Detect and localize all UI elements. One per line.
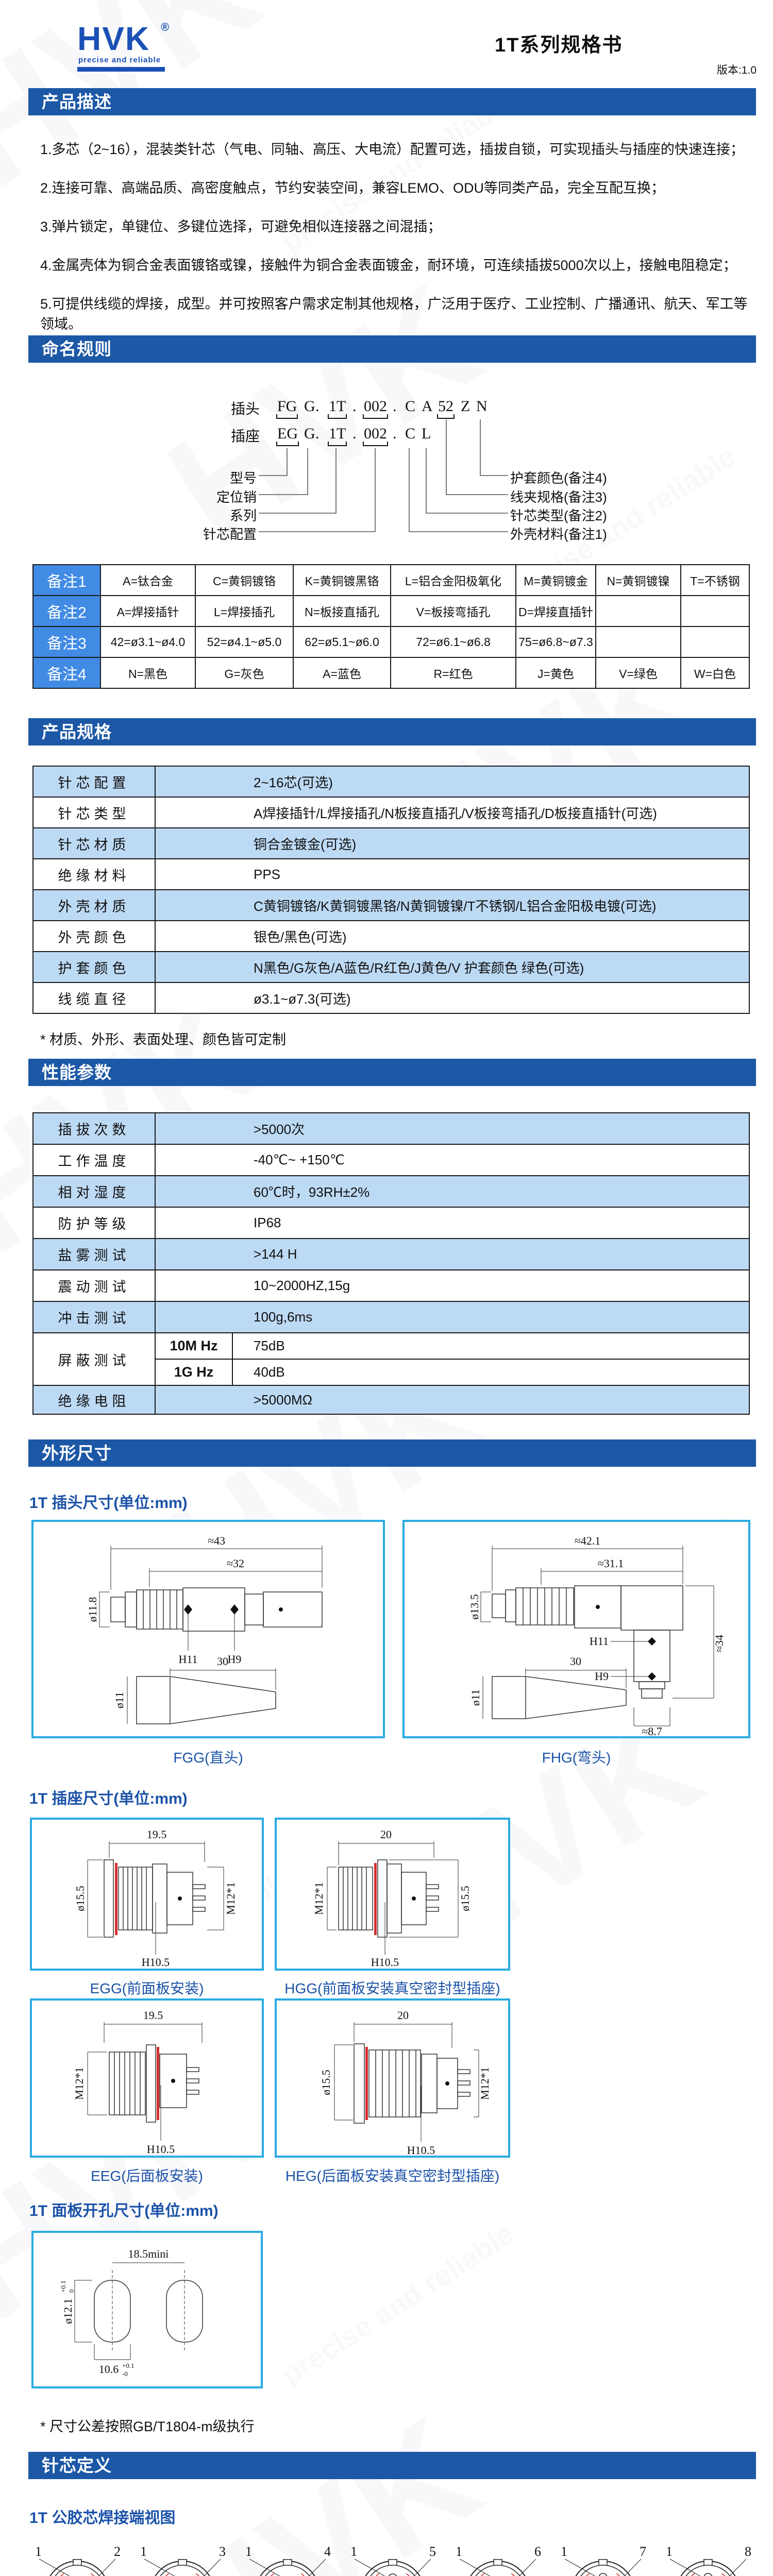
version-label: 版本:1.0: [680, 62, 757, 77]
drawing-box-fgg: ≈43 ≈32 ø11.8 H11 H9 30 ø11: [31, 1520, 385, 1738]
spec-row-label: 针芯材质: [33, 828, 155, 859]
performance-table: 插拔次数>5000次工作温度-40℃~ +150℃相对湿度60℃时，93RH±2…: [32, 1112, 750, 1415]
notes-cell: [681, 596, 749, 626]
pin-view-diagram: 13: [130, 2543, 235, 2576]
egg-drawing: 19.5 ø15.5 M12*1 H10.5: [32, 1820, 262, 1969]
naming-code-token: FG: [277, 398, 297, 415]
dim-eeg-thread: M12*1: [73, 2067, 86, 2100]
pin-view-item: 15公针芯焊接端焊接排序图: [340, 2543, 445, 2576]
section-bar-dimensions: 外形尺寸: [28, 1439, 756, 1467]
perf-row-value: 60℃时，93RH±2%: [155, 1176, 749, 1207]
logo: HVK: [77, 20, 150, 58]
perf-row-value: >144 H: [155, 1239, 749, 1270]
dim-hgg-dia: ø15.5: [459, 1886, 472, 1911]
notes-cell: N=黑色: [100, 657, 195, 688]
naming-code-token: G: [304, 425, 315, 443]
notes-row-label: 备注2: [33, 596, 100, 626]
perf-row-label: 工作温度: [33, 1144, 155, 1176]
drawing-box-fhg: ≈42.1 ≈31.1 ø13.5 ≈34 H11 H9 30 ø11 ≈8.7: [402, 1520, 750, 1738]
naming-code-token: C: [405, 425, 415, 443]
notes-row-label: 备注3: [33, 626, 100, 657]
caption-fhg: FHG(弯头): [402, 1747, 750, 1767]
pin-count-label-right: 6: [534, 2544, 541, 2559]
notes-cell: N=板接直插孔: [293, 596, 391, 626]
notes-cell: R=红色: [391, 657, 516, 688]
notes-cell: A=钛合金: [100, 565, 195, 596]
pin-count-label-left: 1: [140, 2544, 147, 2559]
naming-left-label: 定位销: [175, 487, 257, 506]
eeg-drawing: 19.5 M12*1 H10.5: [32, 2001, 262, 2156]
perf-row-value: 10~2000HZ,15g: [155, 1270, 749, 1301]
notes-cell: [596, 596, 681, 626]
naming-row-label: 插座: [231, 425, 260, 446]
pin-count-label-left: 1: [666, 2544, 673, 2559]
spec-row-label: 外壳颜色: [33, 921, 155, 952]
spec-row-label: 线缆直径: [33, 982, 155, 1013]
dim-panel-width: 10.6: [99, 2363, 119, 2376]
dim-fhg-h11: H11: [590, 1635, 609, 1648]
notes-cell: 62=ø5.1~ø6.0: [293, 626, 391, 657]
pin-view-item: 14公针芯焊接端焊接排序图: [235, 2543, 340, 2576]
drawing-box-panel: 18.5mini ø12.1 +0.1 0 10.6 +0.1 -0: [31, 2231, 263, 2388]
description-list: 1.多芯（2~16），混装类针芯（气电、同轴、高压、大电流）配置可选，插拔自锁，…: [40, 138, 757, 351]
subtitle-socket-dims: 1T 插座尺寸(单位:mm): [29, 1786, 188, 1808]
dim-egg-thread: M12*1: [224, 1882, 237, 1915]
drawing-box-egg: 19.5 ø15.5 M12*1 H10.5: [30, 1818, 264, 1971]
notes-row-label: 备注1: [33, 565, 100, 596]
logo-registered-mark: ®: [161, 21, 169, 34]
notes-cell: V=绿色: [596, 657, 681, 688]
dim-fhg-total: ≈42.1: [575, 1534, 601, 1547]
subtitle-male-pin-views: 1T 公胶芯焊接端视图: [29, 2505, 175, 2528]
naming-code-token: N: [476, 398, 488, 415]
logo-underline: [77, 67, 165, 72]
dim-egg-h: H10.5: [142, 1956, 170, 1969]
performance-table-grid: 插拔次数>5000次工作温度-40℃~ +150℃相对湿度60℃时，93RH±2…: [32, 1112, 750, 1415]
spec-row-value: N黑色/G灰色/A蓝色/R红色/J黄色/V 护套颜色 绿色(可选): [155, 952, 749, 982]
dim-fhg-height: ≈34: [713, 1635, 726, 1652]
perf-shield-freq: 10M Hz: [155, 1333, 232, 1359]
naming-code-token: C: [405, 398, 415, 415]
pin-count-label-right: 3: [219, 2544, 226, 2559]
naming-code-token: G: [304, 398, 315, 415]
dim-fhg-boot-len: 30: [570, 1655, 581, 1668]
caption-heg: HEG(后面板安装真空密封型插座): [275, 2165, 510, 2185]
perf-row-value: 100g,6ms: [155, 1301, 749, 1333]
spec-row-label: 针芯类型: [33, 797, 155, 828]
perf-row-label: 震动测试: [33, 1270, 155, 1301]
naming-code-token: .: [352, 398, 357, 415]
caption-fgg: FGG(直头): [31, 1747, 385, 1767]
naming-left-label: 针芯配置: [175, 524, 257, 543]
pin-view-diagram: 15: [340, 2543, 445, 2576]
pin-view-item: 18公针芯焊接端焊接排序图: [656, 2543, 761, 2576]
spec-row-value: PPS: [155, 859, 749, 890]
section-bar-performance: 性能参数: [28, 1059, 756, 1086]
notes-cell: [596, 626, 681, 657]
notes-cell: V=板接弯插孔: [391, 596, 516, 626]
notes-cell: D=焊接直插针: [516, 596, 596, 626]
notes-cell: C=黄铜镀铬: [195, 565, 293, 596]
dim-panel-w-tol-top: +0.1: [122, 2362, 135, 2369]
notes-table: 备注1A=钛合金C=黄铜镀铬K=黄铜镀黑铬L=铝合金阳极氧化M=黄铜镀金N=黄铜…: [32, 564, 750, 689]
perf-shield-freq: 1G Hz: [155, 1359, 232, 1385]
dim-panel-w-tol-bot: -0: [122, 2370, 128, 2378]
notes-cell: 75=ø6.8~ø7.3: [516, 626, 596, 657]
page-title: 1T系列规格书: [495, 29, 623, 57]
dim-fgg-total: ≈43: [208, 1534, 225, 1547]
perf-row-label: 冲击测试: [33, 1301, 155, 1333]
dim-panel-dia-tol-bot: 0: [68, 2290, 75, 2293]
dim-fgg-h9: H9: [228, 1653, 242, 1666]
notes-cell: G=灰色: [195, 657, 293, 688]
heg-drawing: 20 ø15.5 M12*1 H10.5: [277, 2001, 508, 2156]
naming-right-label: 护套颜色(备注4): [510, 468, 607, 487]
dim-fhg-h9: H9: [595, 1670, 609, 1683]
panel-cutout-drawing: 18.5mini ø12.1 +0.1 0 10.6 +0.1 -0: [33, 2233, 261, 2386]
pin-count-label-left: 1: [350, 2544, 357, 2559]
pin-view-item: 16公针芯焊接端焊接排序图: [445, 2543, 550, 2576]
pin-count-label-right: 7: [640, 2544, 646, 2559]
spec-row-value: 银色/黑色(可选): [155, 921, 749, 952]
hgg-drawing: 20 M12*1 ø15.5 H10.5: [277, 1820, 508, 1969]
naming-left-label: 系列: [175, 505, 257, 524]
dim-heg-len: 20: [397, 2009, 409, 2022]
section-bar-description: 产品描述: [28, 88, 756, 115]
dim-egg-dia: ø15.5: [74, 1886, 87, 1911]
notes-cell: T=不锈钢: [681, 565, 749, 596]
pin-view-diagram: 12: [25, 2543, 130, 2576]
caption-hgg: HGG(前面板安装真空密封型插座): [275, 1977, 510, 1998]
dim-eeg-len: 19.5: [143, 2009, 163, 2022]
notes-cell: A=焊接插针: [100, 596, 195, 626]
section-bar-spec: 产品规格: [28, 718, 756, 745]
dim-heg-h: H10.5: [407, 2144, 435, 2156]
naming-code-token: A: [422, 398, 433, 415]
pin-view-item: 17公针芯焊接端焊接排序图: [550, 2543, 656, 2576]
notes-cell: N=黄铜镀镍: [596, 565, 681, 596]
naming-diagram: 插头FGG.1T.002.CA52ZN插座EGG.1T.002.CL型号定位销系…: [0, 386, 773, 541]
subtitle-panel-cutout: 1T 面板开孔尺寸(单位:mm): [29, 2198, 219, 2221]
naming-left-label: 型号: [175, 468, 257, 487]
perf-row-value: >5000次: [155, 1113, 749, 1144]
notes-cell: L=铝合金阳极氧化: [391, 565, 516, 596]
notes-cell: L=焊接插孔: [195, 596, 293, 626]
dim-fgg-h11: H11: [178, 1653, 197, 1666]
perf-last-value: >5000MΩ: [155, 1385, 749, 1414]
dim-fgg-body: ≈32: [227, 1557, 244, 1570]
pin-count-label-left: 1: [245, 2544, 252, 2559]
perf-shield-label: 屏蔽测试: [33, 1333, 155, 1385]
drawing-box-eeg: 19.5 M12*1 H10.5: [30, 1998, 264, 2158]
naming-code-token: .: [352, 425, 357, 443]
perf-row-value: -40℃~ +150℃: [155, 1144, 749, 1176]
pin-count-label-left: 1: [35, 2544, 42, 2559]
notes-cell: K=黄铜镀黑铬: [293, 565, 391, 596]
pin-view-diagram: 14: [235, 2543, 340, 2576]
naming-code-token: .: [393, 425, 397, 443]
naming-right-label: 针芯类型(备注2): [510, 505, 607, 524]
notes-cell: [681, 626, 749, 657]
naming-code-token: Z: [461, 398, 470, 415]
naming-code-token: 002: [364, 398, 387, 415]
naming-right-label: 外壳材料(备注1): [510, 524, 607, 543]
naming-code-token: .: [315, 425, 320, 443]
dim-fhg-body: ≈31.1: [598, 1557, 624, 1570]
pin-count-label-right: 2: [114, 2544, 121, 2559]
caption-eeg: EEG(后面板安装): [30, 2165, 264, 2185]
logo-tagline: precise and reliable: [78, 56, 161, 64]
spec-row-label: 护套颜色: [33, 952, 155, 982]
perf-shield-value: 75dB: [232, 1333, 749, 1359]
notes-cell: 52=ø4.1~ø5.0: [195, 626, 293, 657]
perf-row-value: IP68: [155, 1207, 749, 1239]
notes-row-label: 备注4: [33, 657, 100, 688]
subtitle-plug-dims: 1T 插头尺寸(单位:mm): [29, 1490, 188, 1513]
pin-view-diagram: 16: [445, 2543, 550, 2576]
notes-cell: M=黄铜镀金: [516, 565, 596, 596]
naming-code-token: L: [422, 425, 431, 443]
spec-table-grid: 针芯配置2~16芯(可选)针芯类型A焊接插针/L焊接插孔/N板接直插孔/V板接弯…: [32, 766, 750, 1014]
dim-fhg-boot-dia: ø11: [469, 1689, 482, 1706]
dim-panel-dia-tol-top: +0.1: [59, 2280, 67, 2293]
dim-fgg-dia: ø11.8: [86, 1597, 99, 1622]
dim-heg-dia: ø15.5: [320, 2070, 332, 2095]
perf-row-label: 防护等级: [33, 1207, 155, 1239]
naming-code-token: .: [315, 398, 320, 415]
spec-row-value: C黄铜镀铬/K黄铜镀黑铬/N黄铜镀镍/T不锈钢/L铝合金阳极电镀(可选): [155, 890, 749, 921]
pin-view-diagram: 17: [550, 2543, 656, 2576]
spec-row-label: 外壳材质: [33, 890, 155, 921]
spec-row-value: ø3.1~ø7.3(可选): [155, 982, 749, 1013]
fhg-drawing: ≈42.1 ≈31.1 ø13.5 ≈34 H11 H9 30 ø11 ≈8.7: [405, 1522, 748, 1736]
dim-hgg-h: H10.5: [371, 1956, 399, 1969]
dim-hgg-len: 20: [380, 1828, 392, 1841]
description-item: 5.可提供线缆的焊接，成型。并可按照客户需求定制其他规格，广泛用于医疗、工业控制…: [40, 293, 757, 333]
pin-count-label-right: 5: [429, 2544, 436, 2559]
dim-fhg-dia: ø13.5: [468, 1594, 481, 1620]
spec-row-value: 铜合金镀金(可选): [155, 828, 749, 859]
naming-row-label: 插头: [231, 398, 260, 418]
perf-row-label: 盐雾测试: [33, 1239, 155, 1270]
dims-note: * 尺寸公差按照GB/T1804-m级执行: [40, 2415, 255, 2435]
description-item: 3.弹片锁定，单键位、多键位选择，可避免相似连接器之间混插；: [40, 215, 757, 235]
perf-row-label: 插拔次数: [33, 1113, 155, 1144]
fgg-drawing: ≈43 ≈32 ø11.8 H11 H9 30 ø11: [33, 1522, 383, 1736]
pin-count-label-right: 8: [745, 2544, 751, 2559]
dim-eeg-h: H10.5: [147, 2143, 175, 2156]
naming-code-token: EG: [277, 425, 298, 443]
dim-panel-pitch: 18.5mini: [128, 2247, 169, 2260]
naming-code-token: 52: [438, 398, 453, 415]
naming-code-token: .: [393, 398, 397, 415]
dim-egg-len: 19.5: [147, 1828, 167, 1841]
spec-row-value: 2~16芯(可选): [155, 766, 749, 797]
description-item: 2.连接可靠、高端品质、高密度触点，节约安装空间，兼容LEMO、ODU等同类产品…: [40, 177, 757, 197]
notes-cell: 42=ø3.1~ø4.0: [100, 626, 195, 657]
pin-view-item: 12公针芯焊接端焊接排序图: [25, 2543, 130, 2576]
description-item: 1.多芯（2~16），混装类针芯（气电、同轴、高压、大电流）配置可选，插拔自锁，…: [40, 138, 757, 158]
perf-last-label: 绝缘电阻: [33, 1385, 155, 1414]
spec-table: 针芯配置2~16芯(可选)针芯类型A焊接插针/L焊接插孔/N板接直插孔/V板接弯…: [32, 766, 750, 1014]
notes-cell: W=白色: [681, 657, 749, 688]
perf-row-label: 相对湿度: [33, 1176, 155, 1207]
naming-code-token: 1T: [329, 398, 346, 415]
pin-view-item: 13公针芯焊接端焊接排序图: [130, 2543, 235, 2576]
caption-egg: EGG(前面板安装): [30, 1977, 264, 1998]
spec-note: * 材质、外形、表面处理、颜色皆可定制: [40, 1028, 286, 1048]
drawing-box-heg: 20 ø15.5 M12*1 H10.5: [275, 1998, 510, 2158]
notes-cell: J=黄色: [516, 657, 596, 688]
naming-code-token: 1T: [329, 425, 346, 443]
spec-row-value: A焊接插针/L焊接插孔/N板接直插孔/V板接弯插孔/D板接直插针(可选): [155, 797, 749, 828]
naming-right-label: 线夹规格(备注3): [510, 487, 607, 506]
notes-cell: 72=ø6.1~ø6.8: [391, 626, 516, 657]
dim-hgg-thread: M12*1: [312, 1882, 325, 1915]
pin-count-label-left: 1: [456, 2544, 462, 2559]
section-bar-pin-definition: 针芯定义: [28, 2452, 756, 2479]
pin-view-diagram: 18: [656, 2543, 761, 2576]
pin-count-label-right: 4: [324, 2544, 331, 2559]
notes-table-grid: 备注1A=钛合金C=黄铜镀铬K=黄铜镀黑铬L=铝合金阳极氧化M=黄铜镀金N=黄铜…: [32, 564, 750, 689]
pin-count-label-left: 1: [561, 2544, 567, 2559]
spec-row-label: 绝缘材料: [33, 859, 155, 890]
perf-shield-value: 40dB: [232, 1359, 749, 1385]
dim-panel-dia: ø12.1: [61, 2298, 74, 2324]
dim-heg-thread: M12*1: [478, 2067, 491, 2100]
dim-fgg-boot-dia: ø11: [113, 1692, 126, 1708]
drawing-box-hgg: 20 M12*1 ø15.5 H10.5: [275, 1818, 510, 1971]
dim-fhg-elbow: ≈8.7: [642, 1725, 662, 1736]
spec-row-label: 针芯配置: [33, 766, 155, 797]
notes-cell: A=蓝色: [293, 657, 391, 688]
naming-code-token: 002: [364, 425, 387, 443]
description-item: 4.金属壳体为铜合金表面镀铬或镍，接触件为铜合金表面镀金，耐环境，可连续插拔50…: [40, 254, 757, 274]
dim-fgg-boot-len: 30: [217, 1655, 228, 1668]
